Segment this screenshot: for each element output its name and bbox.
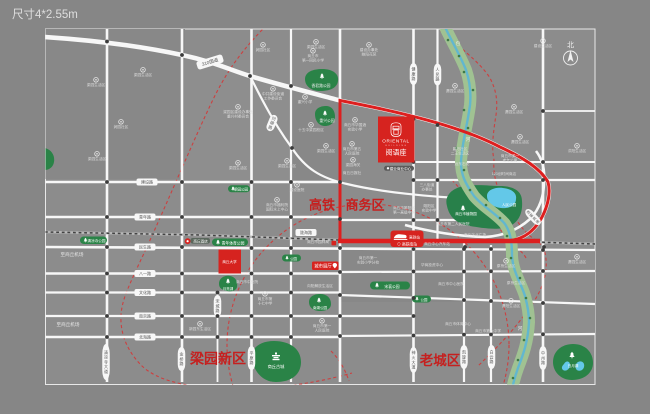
svg-text:三八街道: 三八街道 [420, 182, 435, 187]
svg-text:河: 河 [466, 136, 471, 142]
svg-text:潇园生活区: 潇园生活区 [511, 139, 530, 144]
svg-text:梁园生活区: 梁园生活区 [278, 163, 297, 168]
svg-text:商丘日报社: 商丘日报社 [343, 170, 362, 175]
svg-text:国际水上中心: 国际水上中心 [266, 207, 288, 212]
svg-text:原桥生活区: 原桥生活区 [497, 263, 516, 268]
svg-text:路: 路 [490, 358, 494, 364]
svg-text:梁园生活区: 梁园生活区 [134, 72, 153, 77]
svg-text:尺寸4*2.55m: 尺寸4*2.55m [12, 7, 78, 21]
svg-text:办事处: 办事处 [421, 187, 432, 192]
svg-text:民生路: 民生路 [139, 243, 151, 249]
svg-text:商丘市园林局: 商丘市园林局 [307, 239, 329, 244]
svg-text:商丘市: 商丘市 [307, 53, 318, 58]
svg-text:北海路: 北海路 [139, 333, 151, 339]
svg-text:高铁站: 高铁站 [409, 234, 420, 239]
svg-text:建业商业中心: 建业商业中心 [390, 166, 412, 171]
svg-text:月亮湖: 月亮湖 [223, 286, 234, 291]
svg-text:北: 北 [567, 41, 574, 49]
svg-text:路: 路 [412, 75, 416, 81]
svg-text:潇阳生活区: 潇阳生活区 [502, 303, 521, 308]
svg-text:梁园生活区: 梁园生活区 [88, 156, 107, 161]
svg-text:路: 路 [180, 360, 184, 366]
svg-text:商丘市第二人民医院: 商丘市第二人民医院 [436, 221, 469, 226]
svg-text:至商丘机场: 至商丘机场 [57, 321, 80, 328]
svg-text:路: 路 [436, 76, 440, 82]
svg-text:梁园生活区: 梁园生活区 [317, 148, 336, 153]
svg-text:实验小学分校: 实验小学分校 [357, 260, 379, 265]
svg-text:商丘市福利院: 商丘市福利院 [266, 202, 288, 207]
svg-text:润园社区: 润园社区 [114, 124, 129, 129]
svg-text:睢阳花苑: 睢阳花苑 [362, 52, 377, 57]
svg-text:日月湖: 日月湖 [568, 363, 579, 368]
svg-text:商丘市梁一: 商丘市梁一 [501, 153, 520, 158]
svg-text:路: 路 [462, 358, 466, 364]
svg-text:八一路: 八一路 [139, 270, 151, 276]
svg-text:潇园生活区: 潇园生活区 [505, 109, 524, 114]
svg-text:晨阳社区: 晨阳社区 [453, 146, 468, 151]
svg-text:宋襄公园: 宋襄公园 [384, 284, 399, 289]
svg-text:梁园区建设办事处: 梁园区建设办事处 [223, 109, 253, 114]
svg-text:老城区: 老城区 [420, 352, 461, 368]
svg-text:商丘中心汽车站: 商丘中心汽车站 [424, 241, 450, 246]
svg-text:梁园海关: 梁园海关 [346, 162, 361, 167]
svg-text:老年公寓: 老年公寓 [503, 158, 518, 163]
svg-text:向阳解放生活区: 向阳解放生活区 [307, 283, 333, 288]
svg-text:第一高级中学: 第一高级中学 [393, 210, 415, 215]
svg-text:高铁: 高铁 [309, 198, 335, 213]
svg-text:商丘市睢阳区: 商丘市睢阳区 [393, 205, 415, 210]
svg-text:梁园新区: 梁园新区 [189, 351, 246, 367]
svg-text:商丘古城: 商丘古城 [268, 363, 286, 370]
svg-text:潇园生活区: 潇园生活区 [568, 259, 587, 264]
svg-text:公园: 公园 [421, 297, 428, 302]
svg-text:商丘市中医院: 商丘市中医院 [236, 279, 258, 284]
svg-text:中共建设街道: 中共建设街道 [262, 91, 284, 96]
svg-text:阅语座: 阅语座 [386, 148, 407, 157]
svg-text:二王生活区: 二王生活区 [451, 151, 470, 156]
svg-text:建设生活区: 建设生活区 [534, 43, 553, 48]
svg-text:青年体育公园: 青年体育公园 [222, 241, 245, 246]
svg-text:商丘市第五: 商丘市第五 [343, 146, 362, 151]
svg-text:香君路公园: 香君路公园 [312, 83, 331, 88]
svg-text:梁园公园: 梁园公园 [234, 186, 248, 191]
svg-text:商丘酒店: 商丘酒店 [193, 238, 208, 243]
svg-text:实验小学: 实验小学 [348, 127, 363, 132]
svg-text:原桥生活区: 原桥生活区 [507, 280, 526, 285]
svg-text:人民公园: 人民公园 [502, 202, 517, 207]
svg-text:路: 路 [216, 307, 220, 313]
svg-text:梁园生活区: 梁园生活区 [87, 82, 106, 87]
svg-text:ORIENTAL: ORIENTAL [382, 139, 409, 144]
svg-text:商丘市第一: 商丘市第一 [313, 323, 332, 328]
svg-text:商务区: 商务区 [345, 198, 384, 213]
svg-text:梁园生活区: 梁园生活区 [229, 165, 248, 170]
svg-text:B U I L D I N G: B U I L D I N G [385, 145, 406, 147]
svg-text:商丘市第: 商丘市第 [258, 296, 273, 301]
svg-text:城市展厅: 城市展厅 [314, 263, 332, 270]
svg-text:商丘市华国酒: 商丘市华国酒 [344, 122, 366, 127]
svg-text:青年路: 青年路 [139, 213, 151, 219]
svg-text:南湖公园: 南湖公园 [313, 305, 327, 310]
svg-text:商丘大学: 商丘大学 [222, 259, 237, 264]
svg-text:实验中学: 实验中学 [422, 208, 437, 213]
svg-text:新园东生活区: 新园东生活区 [189, 326, 211, 331]
svg-text:建设路: 建设路 [141, 178, 153, 184]
svg-text:潇园生活区: 潇园生活区 [446, 88, 465, 93]
svg-text:公园: 公园 [290, 256, 297, 261]
svg-text:文化路: 文化路 [139, 289, 151, 295]
svg-text:路: 路 [250, 359, 254, 365]
svg-text:第一回民小学: 第一回民小学 [302, 58, 324, 63]
svg-text:重兴公园: 重兴公园 [319, 118, 334, 123]
svg-text:远东石化: 远东石化 [455, 161, 470, 166]
svg-text:123创时间商店: 123创时间商店 [492, 171, 517, 176]
svg-text:陇海路: 陇海路 [300, 229, 312, 235]
svg-text:梁园生活区: 梁园生活区 [307, 44, 326, 49]
svg-text:南京路: 南京路 [139, 312, 151, 318]
svg-text:建设医院: 建设医院 [290, 187, 305, 192]
svg-text:睢阳区: 睢阳区 [423, 203, 434, 208]
svg-text:至商丘机场: 至商丘机场 [61, 251, 84, 258]
svg-text:商丘站北广场: 商丘站北广场 [464, 232, 486, 237]
svg-text:华商投资中心: 华商投资中心 [421, 262, 443, 267]
svg-text:重兴小学: 重兴小学 [298, 99, 313, 104]
svg-text:商丘市中心医院: 商丘市中心医院 [438, 281, 464, 286]
svg-text:商丘市体育中心: 商丘市体育中心 [445, 321, 471, 326]
svg-text:商丘市第六中学: 商丘市第六中学 [475, 328, 501, 333]
svg-text:包: 包 [456, 40, 461, 46]
svg-text:工作委员会: 工作委员会 [264, 96, 283, 101]
svg-text:十五中梁园校区: 十五中梁园校区 [298, 127, 324, 132]
svg-text:道: 道 [412, 364, 416, 370]
svg-text:⊙ 高铁南站: ⊙ 高铁南站 [397, 241, 417, 246]
svg-text:河: 河 [518, 325, 523, 331]
svg-text:路: 路 [541, 359, 545, 365]
svg-text:商丘市植物园: 商丘市植物园 [455, 211, 477, 216]
svg-text:道: 道 [104, 368, 108, 374]
svg-text:十七中学: 十七中学 [258, 301, 273, 306]
svg-text:人民医院: 人民医院 [315, 328, 330, 333]
svg-text:商丘市第一: 商丘市第一 [359, 255, 378, 260]
svg-text:建设办事处: 建设办事处 [360, 47, 379, 52]
svg-text:洪阳生活区: 洪阳生活区 [568, 148, 587, 153]
svg-text:人民医院: 人民医院 [345, 151, 360, 156]
svg-text:润园社区: 润园社区 [256, 47, 271, 52]
svg-text:清凉寺公园: 清凉寺公园 [88, 238, 106, 243]
svg-text:重兴村委员会: 重兴村委员会 [227, 114, 249, 119]
